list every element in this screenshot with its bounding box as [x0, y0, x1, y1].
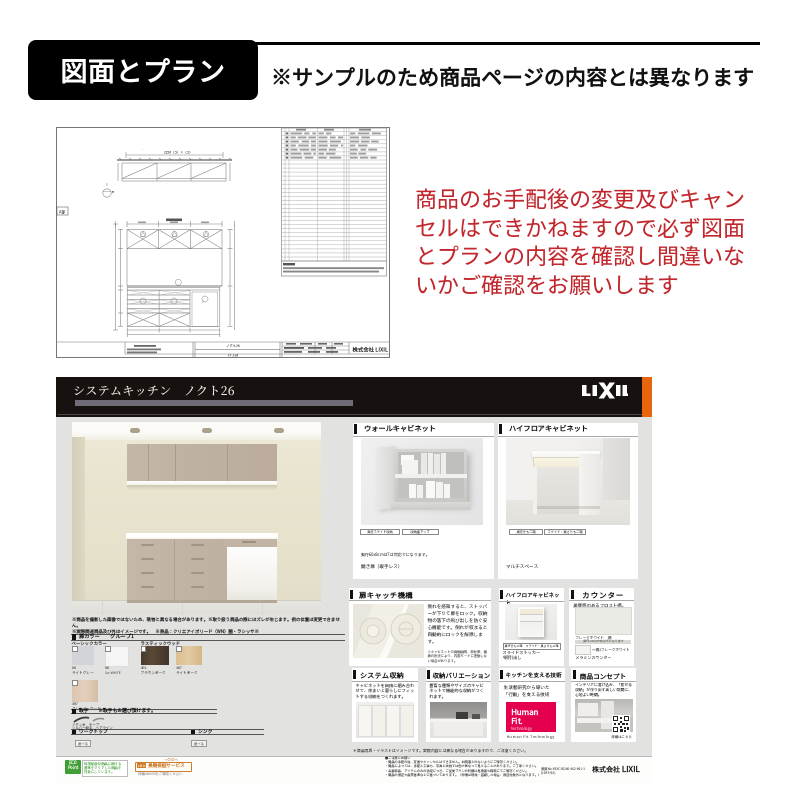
- svg-text:A部: A部: [59, 210, 65, 216]
- svg-text:2250（.5）×（.5）: 2250（.5）×（.5）: [164, 150, 192, 155]
- svg-text:株式会社 LIXIL: 株式会社 LIXIL: [353, 347, 389, 354]
- svg-text:ノクト26: ノクト26: [226, 343, 240, 348]
- svg-text:I-TJ-26: I-TJ-26: [228, 353, 239, 358]
- svg-text:B: B: [112, 190, 114, 194]
